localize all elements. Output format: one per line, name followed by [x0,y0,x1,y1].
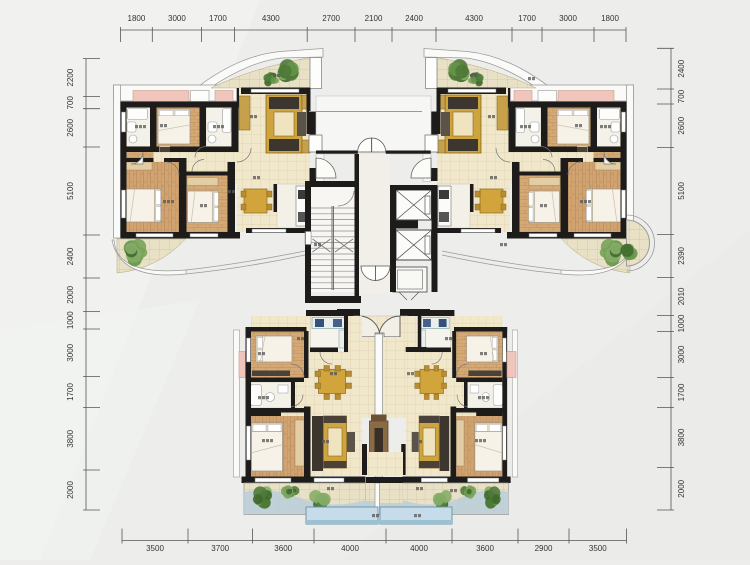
svg-text:2000: 2000 [66,481,75,499]
svg-text:1700: 1700 [209,14,227,23]
svg-text:2400: 2400 [66,247,75,265]
svg-text:3000: 3000 [559,14,577,23]
svg-text:2700: 2700 [322,14,340,23]
svg-text:2010: 2010 [677,287,686,305]
svg-text:1000: 1000 [66,311,75,329]
svg-text:5100: 5100 [66,182,75,200]
svg-text:2100: 2100 [365,14,383,23]
svg-text:1800: 1800 [128,14,146,23]
svg-text:3500: 3500 [589,544,607,553]
svg-text:3000: 3000 [66,343,75,361]
svg-text:3500: 3500 [146,544,164,553]
svg-text:5100: 5100 [677,181,686,199]
svg-text:1700: 1700 [66,383,75,401]
svg-text:1000: 1000 [677,314,686,332]
svg-text:2900: 2900 [535,544,553,553]
svg-text:3600: 3600 [274,544,292,553]
svg-text:2000: 2000 [677,479,686,497]
svg-text:3800: 3800 [677,428,686,446]
svg-text:1700: 1700 [518,14,536,23]
svg-text:4300: 4300 [262,14,280,23]
svg-text:2000: 2000 [66,285,75,303]
svg-text:3700: 3700 [211,544,229,553]
svg-text:4000: 4000 [341,544,359,553]
svg-text:3800: 3800 [66,429,75,447]
svg-text:2600: 2600 [66,118,75,136]
svg-text:2400: 2400 [677,59,686,77]
svg-text:1700: 1700 [677,383,686,401]
svg-text:2200: 2200 [66,68,75,86]
svg-text:4000: 4000 [410,544,428,553]
svg-text:2400: 2400 [405,14,423,23]
svg-text:700: 700 [677,89,686,103]
svg-text:1800: 1800 [601,14,619,23]
svg-text:3000: 3000 [677,345,686,363]
svg-text:4300: 4300 [465,14,483,23]
svg-text:700: 700 [66,95,75,109]
svg-text:3600: 3600 [476,544,494,553]
svg-text:2600: 2600 [677,116,686,134]
svg-text:2390: 2390 [677,246,686,264]
svg-text:3000: 3000 [168,14,186,23]
